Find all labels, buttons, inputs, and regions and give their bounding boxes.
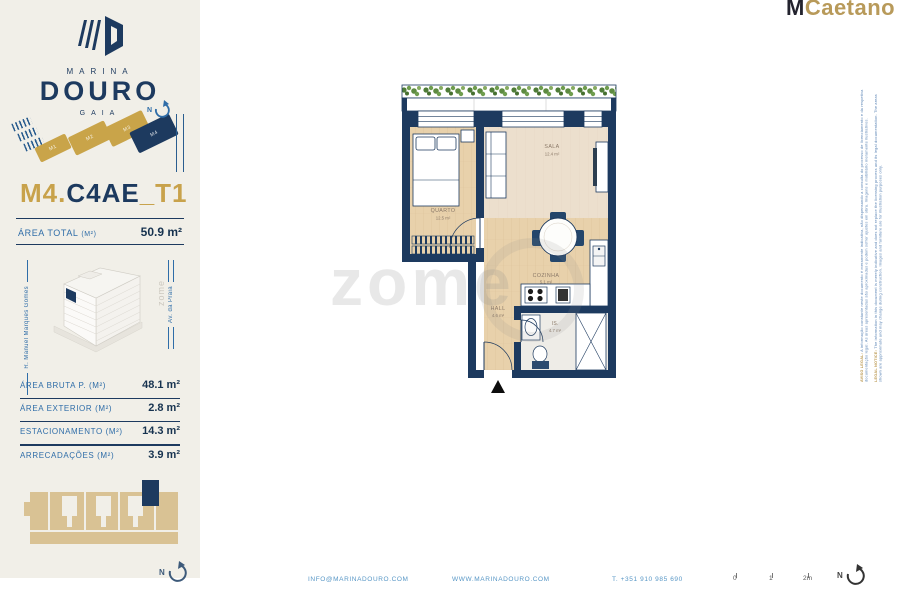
- disclaimer-lead: AVISO LEGAL:: [860, 353, 864, 382]
- shower-closet: [576, 313, 606, 370]
- site-plan-compass: N: [146, 100, 172, 125]
- table-row: ESTACIONAMENTO (M²) 14.3 m²: [20, 422, 180, 446]
- street-label-left: R. Manuel Marques Gomes: [24, 260, 30, 395]
- nightstand: [461, 130, 474, 142]
- street-label-right: Av. da Praia: [168, 260, 174, 349]
- tv: [593, 148, 597, 186]
- balcony-floor: [402, 98, 616, 111]
- keyplan-notch-stem: [101, 516, 106, 527]
- keyplan-line: [118, 492, 120, 530]
- building-label: M4: [149, 129, 159, 138]
- scale-label-2m: 2m: [803, 575, 812, 582]
- agency-logo-m: M: [786, 0, 805, 20]
- closet: [412, 236, 474, 244]
- agency-logo-name: Caetano: [805, 0, 895, 20]
- legal-disclaimer-pt: AVISO LEGAL: A informação constante nest…: [860, 82, 870, 382]
- row-value: 3.9 m²: [148, 449, 180, 461]
- compass-n-label: N: [159, 568, 165, 577]
- areas-table: ÁREA BRUTA P. (M²) 48.1 m² ÁREA EXTERIOR…: [20, 376, 180, 468]
- street-right-text: Av. da Praia: [168, 286, 174, 323]
- keyplan-notch: [62, 496, 77, 516]
- row-value: 14.3 m²: [142, 425, 180, 437]
- table-row: ARRECADAÇÕES (M²) 3.9 m²: [20, 446, 180, 468]
- balcony-planter: [402, 85, 616, 98]
- tv-unit: [596, 142, 608, 192]
- footer-website: WWW.MARINADOURO.COM: [452, 576, 550, 583]
- unit-title: M4.C4AE_T1: [20, 178, 188, 209]
- unit-title-code: C4AE: [66, 178, 139, 208]
- building-logo-icon: [68, 10, 132, 60]
- unit-title-suffix: _T1: [140, 178, 188, 208]
- disclaimer-lead: LEGAL NOTICE:: [874, 350, 878, 382]
- room-name-quarto: QUARTO: [431, 208, 456, 214]
- street-line: [168, 327, 174, 349]
- footer-phone: T. +351 910 985 690: [612, 576, 683, 583]
- street-line: [27, 260, 28, 282]
- site-plan: M1 M2 M3 M4 N: [0, 100, 200, 178]
- area-total-label-text: ÁREA TOTAL: [18, 228, 78, 238]
- divider: [16, 244, 184, 245]
- avenue-lines: [176, 114, 184, 172]
- bed: [413, 134, 459, 206]
- keyplan-line: [48, 492, 50, 530]
- unit-title-prefix: M4.: [20, 178, 66, 208]
- keyplan-line: [30, 530, 178, 532]
- entrance-arrow-icon: [491, 380, 505, 393]
- legal-disclaimer-en: LEGAL NOTICE: The information in this do…: [874, 82, 884, 382]
- keyplan-notch-stem: [133, 516, 138, 527]
- building-illustration-block: R. Manuel Marques Gomes zome Av. da Prai…: [10, 252, 190, 374]
- table-row: ÁREA BRUTA P. (M²) 48.1 m²: [20, 376, 180, 399]
- row-label: ARRECADAÇÕES (M²): [20, 451, 114, 460]
- area-total-unit-note: (M²): [81, 231, 96, 238]
- floor-plan: QUARTO 12.5 m² SALA 12.4 m² COZINHA 5.1 …: [400, 84, 618, 396]
- row-value: 2.8 m²: [148, 402, 180, 414]
- table-row: ÁREA EXTERIOR (M²) 2.8 m²: [20, 399, 180, 422]
- street-line: [168, 260, 174, 282]
- keyplan-notch: [128, 496, 143, 516]
- row-label: ESTACIONAMENTO (M²): [20, 427, 123, 436]
- room-area-sala: 12.4 m²: [545, 152, 560, 157]
- scale-label-0: 0: [733, 575, 737, 582]
- keyplan-notch-stem: [67, 516, 72, 527]
- compass-n-label: N: [837, 571, 843, 580]
- building-label: M1: [48, 144, 58, 153]
- sofa: [486, 132, 506, 198]
- disclaimer-text: The information in this document is mere…: [874, 94, 883, 382]
- sidebar-compass: N: [158, 560, 188, 589]
- compass-n-label: N: [147, 107, 152, 114]
- area-total-label: ÁREA TOTAL (M²): [18, 228, 97, 238]
- watermark-ring: [480, 238, 584, 342]
- area-total-value: 50.9 m²: [141, 225, 182, 239]
- building-label: M2: [85, 134, 95, 143]
- scale-label-1: 1: [769, 575, 773, 582]
- room-area-quarto: 12.5 m²: [436, 216, 451, 221]
- footer-email: INFO@MARINADOURO.COM: [308, 576, 409, 583]
- street-left-text: R. Manuel Marques Gomes: [24, 286, 30, 369]
- keyplan-wing: [24, 502, 30, 516]
- site-building-m2: M2: [68, 120, 113, 156]
- building-axonometric: [52, 262, 144, 366]
- floorplan-sheet: MARINA DOURO GAIA M1 M2 M3 M4 N M4.C4AE_…: [0, 0, 900, 597]
- area-total-block: ÁREA TOTAL (M²) 50.9 m²: [16, 218, 184, 245]
- footer-compass: N: [836, 562, 866, 593]
- agency-logo: MCaetano: [786, 0, 895, 21]
- room-name-sala: SALA: [544, 144, 559, 150]
- row-label: ÁREA EXTERIOR (M²): [20, 404, 112, 413]
- row-value: 48.1 m²: [142, 379, 180, 391]
- keyplan-notch: [96, 496, 111, 516]
- logo-marina-text: MARINA: [0, 67, 200, 76]
- keyplan-highlighted-unit: [142, 480, 159, 506]
- keyplan-line: [84, 492, 86, 530]
- floor-key-plan: [24, 478, 188, 548]
- watermark-small: zome: [156, 280, 166, 306]
- disclaimer-text: A informação constante neste documento é…: [860, 89, 869, 382]
- row-label: ÁREA BRUTA P. (M²): [20, 381, 106, 390]
